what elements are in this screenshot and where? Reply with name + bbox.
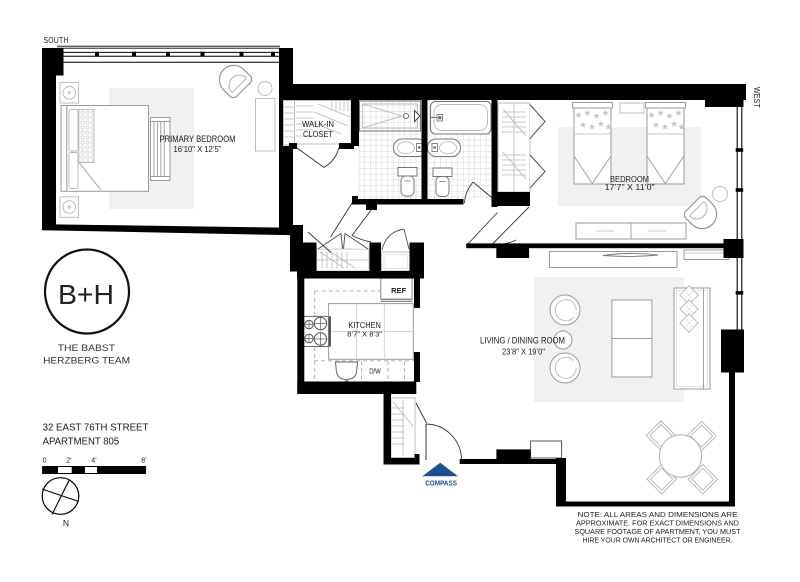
svg-text:PRIMARY BEDROOM: PRIMARY BEDROOM (160, 134, 236, 144)
svg-text:8’7" X 8’3": 8’7" X 8’3" (347, 329, 382, 338)
svg-text:16’10" X 12’5": 16’10" X 12’5" (174, 144, 222, 154)
svg-text:APARTMENT 805: APARTMENT 805 (43, 436, 120, 447)
svg-text:D/W: D/W (369, 368, 381, 375)
svg-text:B+H: B+H (58, 279, 114, 310)
svg-text:WEST: WEST (752, 87, 761, 108)
svg-text:N: N (63, 518, 69, 528)
svg-text:WALK-IN: WALK-IN (302, 120, 334, 129)
svg-text:4’: 4’ (91, 458, 97, 465)
svg-text:17’7" X 11’0": 17’7" X 11’0" (605, 183, 655, 192)
svg-text:CLOSET: CLOSET (303, 130, 333, 139)
svg-text:SOUTH: SOUTH (44, 36, 69, 45)
svg-text:LIVING / DINING ROOM: LIVING / DINING ROOM (480, 336, 565, 346)
svg-text:HERZBERG TEAM: HERZBERG TEAM (43, 354, 130, 365)
svg-text:23’8" X 19’0": 23’8" X 19’0" (502, 347, 545, 357)
svg-text:REF: REF (391, 286, 407, 295)
svg-text:2’: 2’ (66, 458, 72, 465)
svg-text:32 EAST 76TH STREET: 32 EAST 76TH STREET (43, 423, 149, 434)
svg-text:HIRE YOUR OWN ARCHITECT OR ENG: HIRE YOUR OWN ARCHITECT OR ENGINEER. (583, 536, 733, 545)
svg-text:COMPASS: COMPASS (425, 481, 457, 488)
svg-text:8’: 8’ (141, 458, 147, 465)
svg-text:THE BABST: THE BABST (58, 342, 116, 353)
svg-text:0: 0 (43, 458, 47, 465)
